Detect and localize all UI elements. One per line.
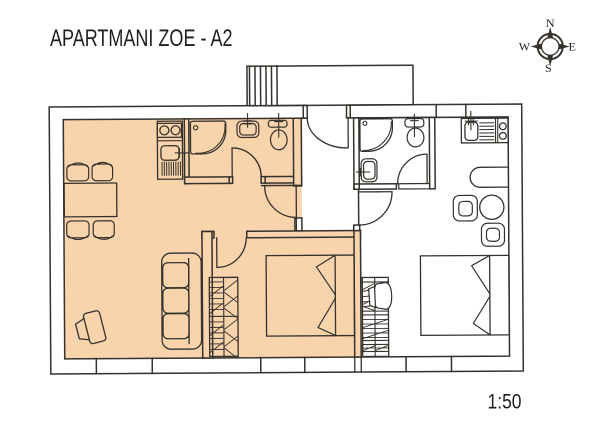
- svg-text:APARTMANI ZOE - A2: APARTMANI ZOE - A2: [50, 25, 233, 52]
- svg-text:S: S: [545, 61, 552, 75]
- svg-text:1:50: 1:50: [488, 390, 522, 414]
- svg-text:E: E: [569, 39, 576, 53]
- svg-text:N: N: [546, 16, 555, 30]
- svg-text:W: W: [519, 39, 531, 53]
